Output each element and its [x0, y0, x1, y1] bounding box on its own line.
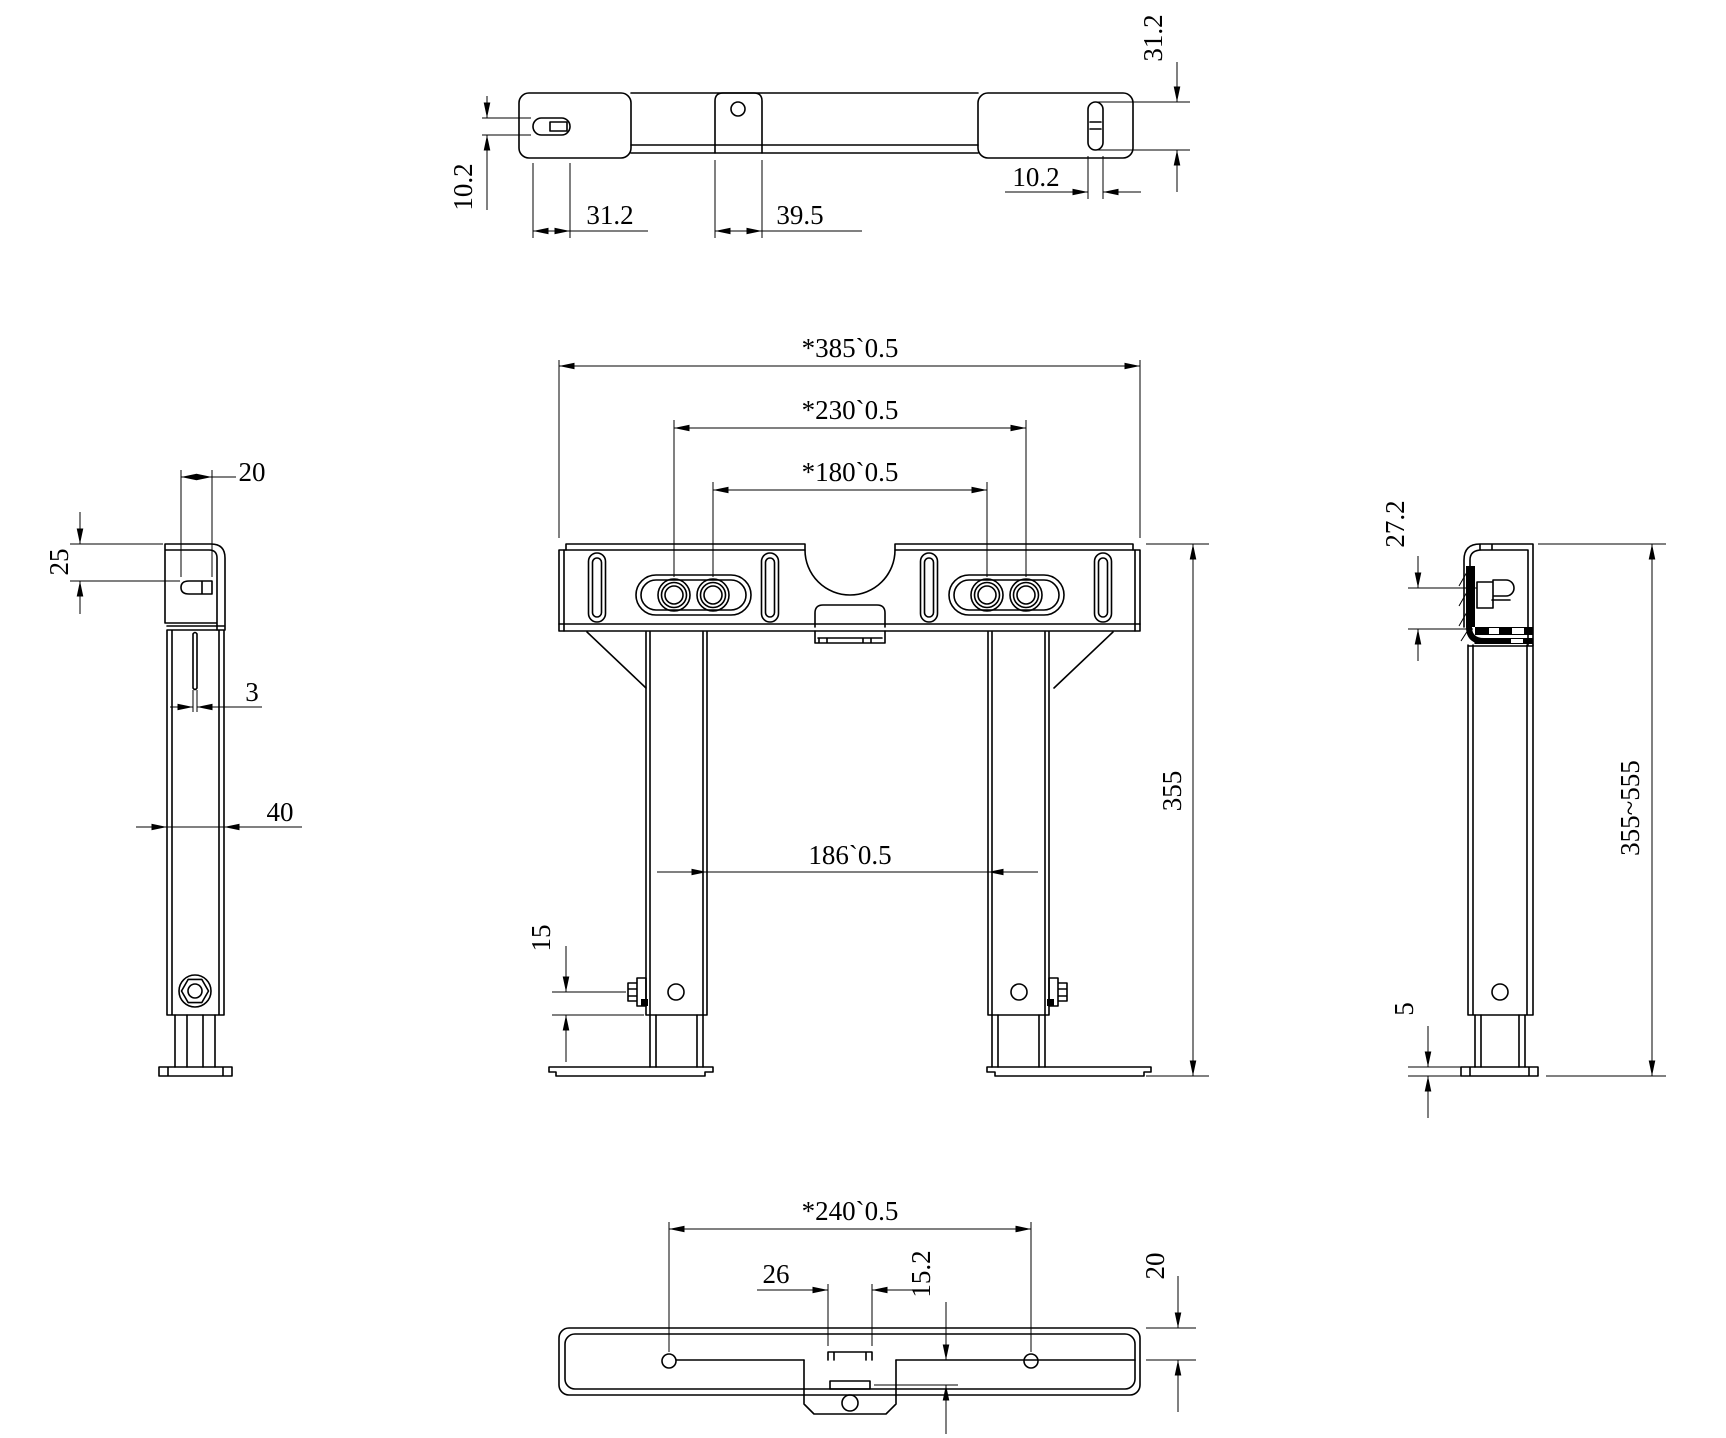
top-left-slot [533, 118, 570, 135]
top-center-hole [731, 102, 745, 116]
right-leg-hole [1492, 984, 1508, 1000]
dim-bottom-tab-depth: 15.2 [906, 1250, 936, 1297]
left-side-view: 20 25 3 40 [44, 457, 302, 1076]
top-right-block [978, 93, 1133, 158]
dim-right-height-range: 355~555 [1615, 760, 1645, 856]
front-slot-2 [762, 553, 779, 622]
bottom-left-hole [662, 1354, 676, 1368]
technical-drawing-page: 10.2 31.2 39.5 10.2 31.2 [0, 0, 1726, 1438]
left-bracket-slot [181, 581, 212, 594]
top-connecting-bar [631, 93, 978, 153]
right-foot [1461, 1067, 1538, 1076]
dim-front-hole-span-outer: *230`0.5 [802, 395, 899, 425]
bottom-view: *240`0.5 26 15.2 20 [559, 1196, 1196, 1434]
dim-left-slot-length: 20 [239, 457, 266, 487]
dim-front-overall-width: *385`0.5 [802, 333, 899, 363]
top-view: 10.2 31.2 39.5 10.2 31.2 [448, 14, 1190, 238]
front-crossbar-lip [559, 544, 1140, 631]
left-bracket [165, 544, 225, 630]
dim-left-leg-width: 40 [267, 797, 294, 827]
dim-left-slot-width: 3 [245, 677, 259, 707]
right-bracket-pin [1477, 580, 1514, 608]
front-right-leg [988, 632, 1049, 1015]
front-left-leg [646, 632, 707, 1015]
dim-bottom-tab-width: 26 [763, 1259, 790, 1289]
dim-right-bracket-depth: 27.2 [1380, 500, 1410, 547]
dim-bottom-hole-span: *240`0.5 [802, 1196, 899, 1226]
front-view: *385`0.5 *230`0.5 *180`0.5 186`0.5 15 35… [526, 333, 1209, 1076]
bottom-right-hole [1024, 1354, 1038, 1368]
front-slot-3 [921, 553, 938, 622]
front-slot-1 [589, 553, 606, 622]
dim-top-slot-width-right: 10.2 [1012, 162, 1059, 192]
bottom-center-tab [804, 1352, 896, 1414]
dim-left-slot-offset: 25 [44, 549, 74, 576]
front-left-leg-hole [668, 984, 684, 1000]
front-slot-4 [1095, 553, 1112, 622]
bottom-tab-hole [842, 1395, 858, 1411]
dim-top-slot-length-left: 31.2 [586, 200, 633, 230]
dim-front-height: 355 [1157, 771, 1187, 812]
dim-bottom-bar-depth: 20 [1140, 1253, 1170, 1280]
left-leg-slit [193, 633, 197, 690]
left-leg [167, 626, 224, 1015]
dim-top-tab-width: 39.5 [776, 200, 823, 230]
top-right-slot-insert [1090, 122, 1101, 129]
top-right-slot [1088, 102, 1103, 150]
front-left-foot [549, 1067, 713, 1076]
front-right-leg-hole [1011, 984, 1027, 1000]
dim-front-hole-span-inner: *180`0.5 [802, 457, 899, 487]
dim-front-bolt-offset: 15 [526, 925, 556, 952]
left-foot [159, 1067, 232, 1076]
bracket-dimension-drawing: 10.2 31.2 39.5 10.2 31.2 [0, 0, 1726, 1438]
front-crossbar [559, 550, 1140, 631]
top-left-block [519, 93, 631, 158]
front-gussets [587, 632, 1113, 688]
dim-front-leg-gap: 186`0.5 [808, 840, 891, 870]
top-left-slot-insert [550, 122, 567, 131]
dim-top-slot-height-left: 10.2 [448, 163, 478, 210]
right-side-view: 27.2 355~555 5 [1380, 500, 1666, 1118]
dim-top-slot-length-right: 31.2 [1138, 14, 1168, 61]
bottom-bar [559, 1328, 1140, 1395]
right-leg [1468, 645, 1533, 1015]
dim-right-foot-thickness: 5 [1389, 1002, 1419, 1016]
right-weld-fill [1466, 566, 1475, 627]
front-right-foot [987, 1067, 1151, 1076]
